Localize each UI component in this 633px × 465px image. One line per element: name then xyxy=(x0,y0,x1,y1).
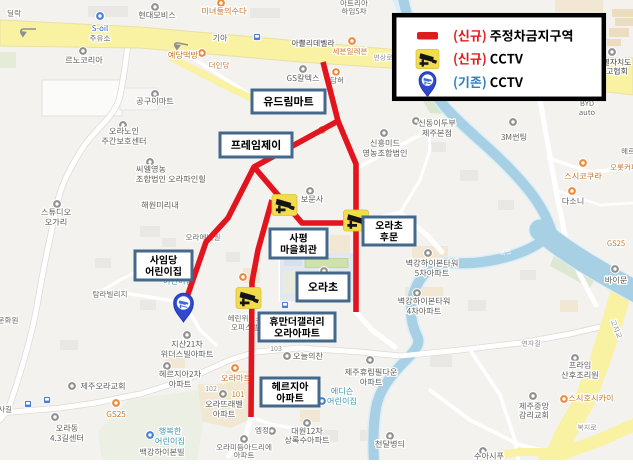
svg-text:다소니: 다소니 xyxy=(562,195,585,207)
svg-text:auto: auto xyxy=(579,107,596,118)
svg-text:102: 102 xyxy=(205,384,217,394)
svg-text:주간보호센터: 주간보호센터 xyxy=(101,135,146,147)
svg-text:스시호시카이: 스시호시카이 xyxy=(568,392,613,404)
svg-text:기아: 기아 xyxy=(212,32,228,44)
svg-text:오라초: 오라초 xyxy=(308,279,338,295)
svg-text:연상로: 연상로 xyxy=(373,53,393,63)
svg-text:문화원: 문화원 xyxy=(0,315,18,326)
svg-text:오라파인힐: 오라파인힐 xyxy=(168,173,206,185)
svg-text:GS칼텍스: GS칼텍스 xyxy=(286,72,320,84)
svg-text:3M썬팅: 3M썬팅 xyxy=(501,131,527,143)
svg-text:어린이집: 어린이집 xyxy=(327,395,357,407)
svg-text:헤르: 헤르 xyxy=(621,146,633,157)
svg-text:오롯커피: 오롯커피 xyxy=(610,162,633,173)
svg-text:현대모비스: 현대모비스 xyxy=(138,9,176,21)
svg-text:바이문: 바이문 xyxy=(605,274,628,286)
svg-text:담혀: 담혀 xyxy=(330,75,344,86)
svg-text:주유소: 주유소 xyxy=(90,33,111,44)
svg-text:르노코리아: 르노코리아 xyxy=(65,54,103,66)
svg-text:예당떡방: 예당떡방 xyxy=(168,49,199,61)
svg-text:(신규) 주정차금지구역: (신규) 주정차금지구역 xyxy=(453,26,573,45)
svg-text:복지로: 복지로 xyxy=(577,423,597,433)
svg-text:아파트: 아파트 xyxy=(213,408,236,420)
svg-text:103: 103 xyxy=(270,344,282,354)
svg-text:아파트: 아파트 xyxy=(234,450,255,460)
svg-text:GS25: GS25 xyxy=(106,408,126,420)
svg-text:5차아파트: 5차아파트 xyxy=(415,267,450,279)
svg-text:마을회관: 마을회관 xyxy=(280,241,317,256)
svg-text:감리교회: 감리교회 xyxy=(519,409,549,421)
svg-text:탐라빌리지: 탐라빌리지 xyxy=(93,289,128,300)
svg-text:천달병듸: 천달병듸 xyxy=(375,438,405,450)
svg-text:(기존) CCTV: (기존) CCTV xyxy=(453,72,524,91)
svg-text:오가리: 오가리 xyxy=(45,216,68,228)
svg-text:엠정: 엠정 xyxy=(255,425,269,436)
svg-text:어린이집: 어린이집 xyxy=(145,263,182,278)
svg-text:사길: 사길 xyxy=(0,404,12,415)
svg-text:후문: 후문 xyxy=(380,228,398,243)
svg-text:프레임제이: 프레임제이 xyxy=(231,137,282,153)
svg-text:유드림마트: 유드림마트 xyxy=(263,93,314,109)
svg-text:백강하이본빌: 백강하이본빌 xyxy=(139,446,184,458)
svg-text:제주본점: 제주본점 xyxy=(422,127,452,139)
svg-text:하임5차: 하임5차 xyxy=(341,6,366,17)
svg-text:연자길: 연자길 xyxy=(521,339,540,349)
svg-text:고협회: 고협회 xyxy=(606,66,628,77)
svg-text:아파트: 아파트 xyxy=(360,376,383,388)
svg-text:위더스빌아파트: 위더스빌아파트 xyxy=(161,348,214,360)
svg-text:스시코쿠라: 스시코쿠라 xyxy=(564,170,602,182)
svg-text:딜락: 딜락 xyxy=(7,8,21,19)
svg-text:(신규) CCTV: (신규) CCTV xyxy=(453,49,524,68)
svg-text:수아시푸: 수아시푸 xyxy=(474,450,505,460)
svg-text:아쁠리데벨라: 아쁠리데벨라 xyxy=(291,38,334,49)
svg-text:오피스텔: 오피스텔 xyxy=(231,322,259,333)
svg-text:오라마트: 오라마트 xyxy=(221,372,252,384)
svg-text:해원미리내: 해원미리내 xyxy=(141,199,179,211)
svg-text:산후조리원: 산후조리원 xyxy=(561,369,599,381)
svg-text:GS25: GS25 xyxy=(607,238,625,249)
svg-text:4.3길센터: 4.3길센터 xyxy=(50,432,84,444)
svg-text:미녀들의수다: 미녀들의수다 xyxy=(201,5,247,17)
svg-text:보문사: 보문사 xyxy=(301,193,324,205)
svg-text:더인당: 더인당 xyxy=(209,60,230,71)
svg-text:조합법인: 조합법인 xyxy=(136,173,166,185)
svg-text:아파트: 아파트 xyxy=(276,389,304,404)
svg-text:아파트: 아파트 xyxy=(169,378,192,390)
svg-text:공구이마트: 공구이마트 xyxy=(136,95,174,107)
svg-text:오늘의찬: 오늘의찬 xyxy=(293,350,324,362)
svg-text:제주오라교회: 제주오라교회 xyxy=(80,380,125,392)
svg-text:오라아파트: 오라아파트 xyxy=(274,324,320,339)
svg-text:세븐일레븐: 세븐일레븐 xyxy=(333,46,368,57)
svg-text:영농조합법인: 영농조합법인 xyxy=(362,147,407,159)
svg-text:상록수아파트: 상록수아파트 xyxy=(284,434,330,446)
svg-text:4차아파트: 4차아파트 xyxy=(407,305,442,317)
